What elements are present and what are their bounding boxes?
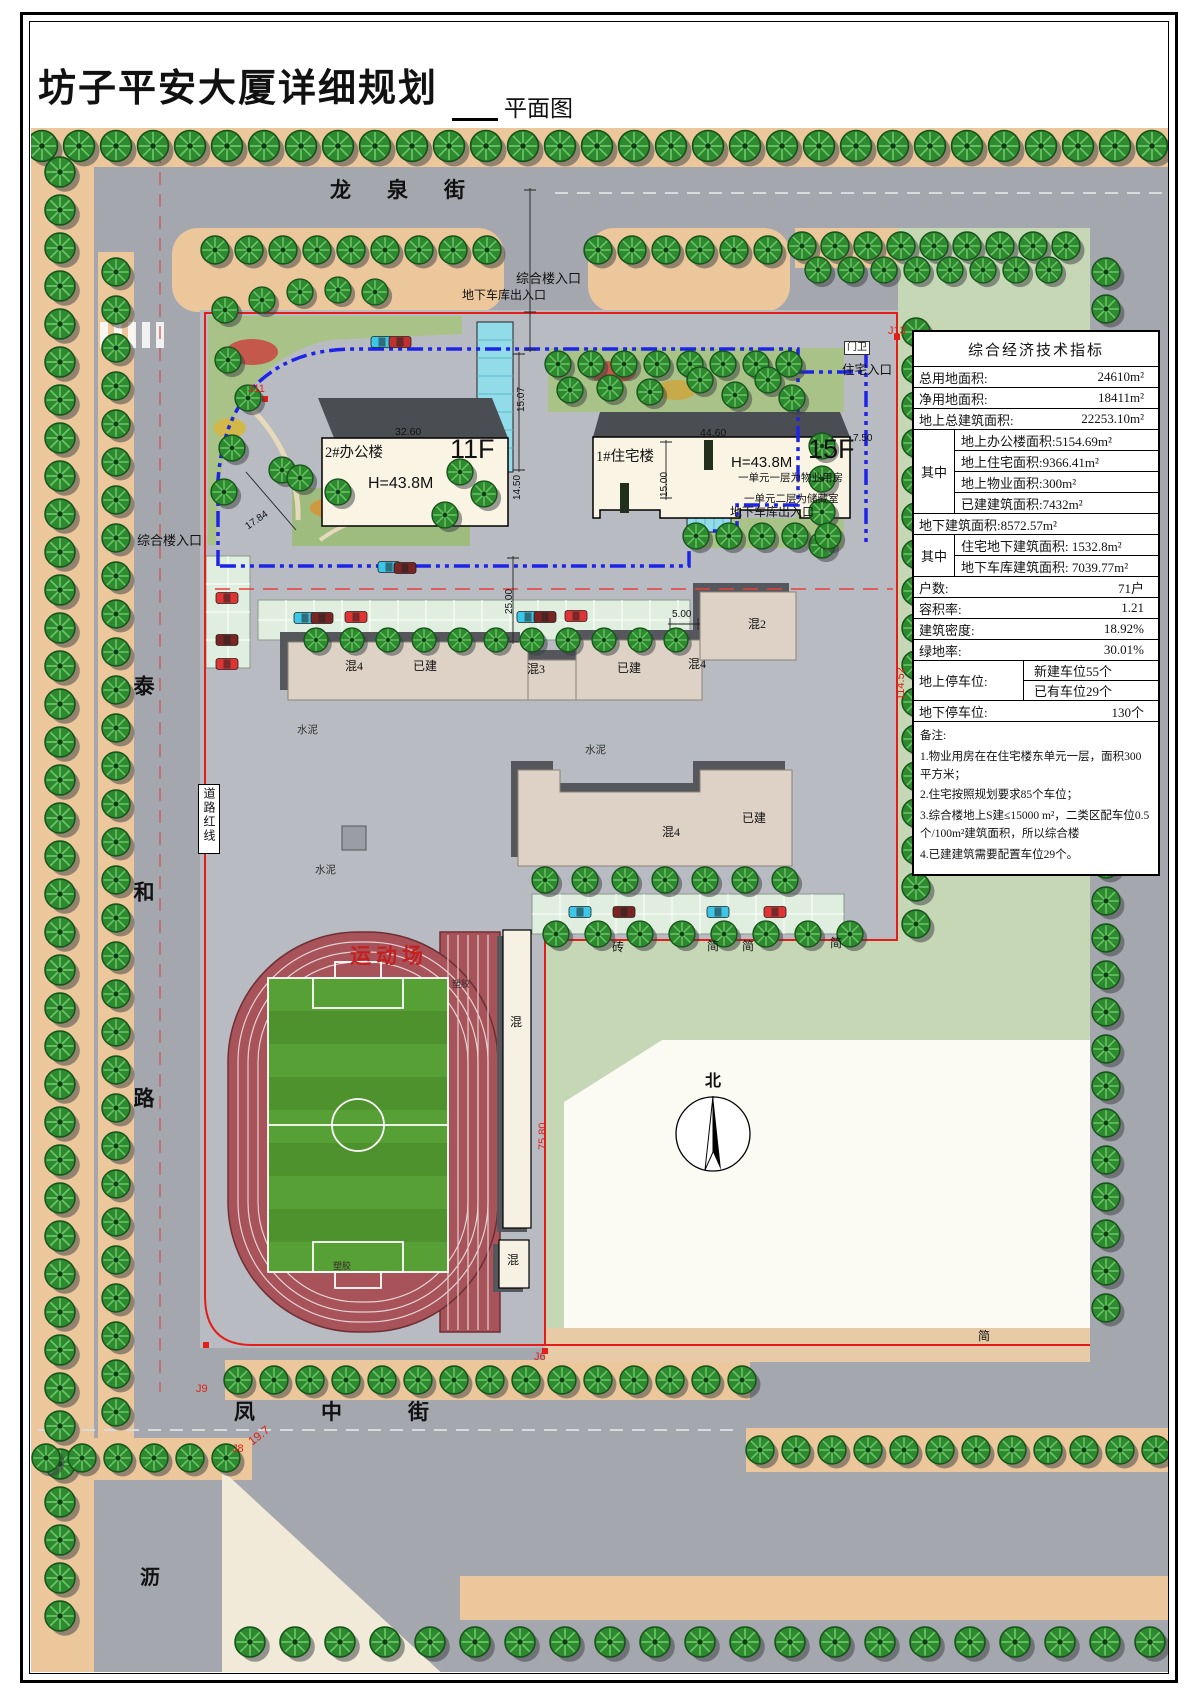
- notes-block: 备注: 1.物业用房在在住宅楼东单元一层，面积300平方米； 2.住宅按照规划要…: [914, 721, 1158, 874]
- table-row: 地上总建筑面积: 22253.10m²: [914, 408, 1158, 429]
- office-floors: 11F: [450, 436, 495, 463]
- survey-j8: J8: [232, 1444, 244, 1455]
- dim-5-00: 5.00: [672, 610, 691, 620]
- table-row: 已建建筑面积:7432m²: [955, 492, 1158, 513]
- note-line: 3.综合楼地上S建≤15000 m²，二类区配车位0.5个/100m²建筑面积，…: [920, 808, 1152, 844]
- road-red-line-box: 道路红线: [198, 784, 220, 854]
- dim-15-00: 15.00: [660, 472, 670, 497]
- note-line: 1.物业用房在在住宅楼东单元一层，面积300平方米；: [920, 749, 1152, 785]
- residential-unit-note-1: 一单元一层为物业用房: [738, 474, 843, 485]
- table-row: 地上住宅面积:9366.41m²: [955, 450, 1158, 471]
- residential-name: 1#住宅楼: [596, 450, 654, 465]
- residential-height: H=43.8M: [731, 455, 792, 470]
- entrance-complex-west: 综合楼入口: [137, 534, 202, 547]
- label-built-a: 已建: [413, 660, 437, 672]
- north-label: 北: [705, 1074, 721, 1090]
- table-row: 绿地率: 30.01%: [914, 639, 1158, 660]
- street-west: 泰和路: [132, 675, 153, 1293]
- table-row: 地下建筑面积:8572.57m²: [914, 513, 1158, 534]
- label-hun4-a: 混4: [345, 660, 363, 672]
- table-row-surface-parking: 地上停车位: 新建车位55个 已有车位29个: [914, 660, 1158, 700]
- label-rubber-b: 塑胶: [333, 1262, 351, 1271]
- table-row: 净用地面积: 18411m²: [914, 387, 1158, 408]
- label-hun-b: 混: [507, 1254, 519, 1266]
- dim-75-80: 75.80: [538, 1122, 549, 1150]
- survey-j11: J11: [248, 384, 265, 395]
- survey-j6: J6: [534, 1352, 546, 1363]
- label-brick: 砖: [612, 941, 624, 953]
- entrance-garage-north: 地下车库出入口: [462, 289, 546, 301]
- label-rubber-a: 塑胶: [452, 980, 470, 989]
- label-cement-b: 水泥: [585, 746, 606, 757]
- label-cement-a: 水泥: [297, 726, 318, 737]
- dim-office-width: 32.60: [395, 427, 421, 438]
- label-built-c: 已建: [742, 812, 766, 824]
- street-corner: 沥: [140, 1568, 160, 1588]
- road-red-line-label: 道路红线: [203, 787, 215, 843]
- label-simple-c: 简: [830, 937, 842, 949]
- label-built-b: 已建: [617, 662, 641, 674]
- table-row: 建筑密度: 18.92%: [914, 618, 1158, 639]
- entrance-complex-north: 综合楼入口: [516, 272, 581, 285]
- plan-sheet: 坊子平安大厦详细规划 平面图 龙泉街 泰和路 凤中街 沥 综合楼入口 地下车库出…: [0, 0, 1200, 1697]
- subtitle-underline: [452, 118, 498, 121]
- indicators-title: 综合经济技术指标: [914, 332, 1158, 366]
- dim-14-50: 14.50: [513, 475, 523, 500]
- label-hun-a: 混: [510, 1016, 522, 1028]
- table-row: 地上办公楼面积:5154.69m²: [955, 430, 1158, 450]
- table-group-underground: 其中 住宅地下建筑面积: 1532.8m² 地下车库建筑面积: 7039.77m…: [914, 534, 1158, 576]
- office-height: H=43.8M: [368, 476, 433, 492]
- dim-15-07: 15.07: [517, 387, 527, 412]
- notes-title: 备注:: [920, 728, 1152, 746]
- label-simple-a: 简: [707, 940, 719, 952]
- label-cement-c: 水泥: [315, 866, 336, 877]
- table-row: 户数: 71户: [914, 576, 1158, 597]
- table-row: 容积率: 1.21: [914, 597, 1158, 618]
- entrance-residential: 住宅入口: [842, 364, 892, 377]
- indicators-table: 综合经济技术指标 总用地面积: 24610m² 净用地面积: 18411m² 地…: [912, 330, 1160, 876]
- label-hun4-c: 混4: [662, 826, 680, 838]
- stadium-name: 运动场: [350, 946, 428, 967]
- table-row: 地上物业面积:300m²: [955, 471, 1158, 492]
- label-simple-d: 简: [978, 1330, 990, 1342]
- table-row: 住宅地下建筑面积: 1532.8m²: [955, 535, 1158, 555]
- dim-residential-width: 44.60: [700, 428, 726, 439]
- table-row: 地下车库建筑面积: 7039.77m²: [955, 555, 1158, 576]
- table-row: 总用地面积: 24610m²: [914, 366, 1158, 387]
- label-simple-b: 简: [742, 940, 754, 952]
- page-title: 坊子平安大厦详细规划: [38, 70, 438, 108]
- page-subtitle: 平面图: [504, 97, 573, 120]
- gatehouse-label: 门卫: [844, 341, 870, 355]
- label-hun3: 混3: [527, 663, 545, 675]
- survey-j13: J13: [888, 326, 906, 337]
- table-group-aboveground: 其中 地上办公楼面积:5154.69m² 地上住宅面积:9366.41m² 地上…: [914, 429, 1158, 513]
- residential-unit-note-2: 一单元二层为储藏室: [744, 495, 839, 506]
- survey-j9: J9: [196, 1384, 208, 1395]
- dim-25-00: 25.00: [505, 589, 515, 614]
- table-row-underground-parking: 地下停车位: 130个: [914, 700, 1158, 721]
- dim-7-50: 7.50: [853, 434, 872, 444]
- residential-floors: 15F: [808, 436, 855, 463]
- dim-114-52: 114.52: [896, 667, 907, 700]
- note-line: 4.已建建筑需要配置车位29个。: [920, 847, 1152, 865]
- entrance-garage-east: 地下车库出入口: [730, 506, 814, 518]
- note-line: 2.住宅按照规划要求85个车位；: [920, 787, 1152, 805]
- street-north: 龙泉街: [330, 180, 501, 201]
- office-name: 2#办公楼: [325, 446, 383, 461]
- label-hun2: 混2: [748, 618, 766, 630]
- street-south: 凤中街: [234, 1402, 495, 1423]
- label-hun4-b: 混4: [688, 658, 706, 670]
